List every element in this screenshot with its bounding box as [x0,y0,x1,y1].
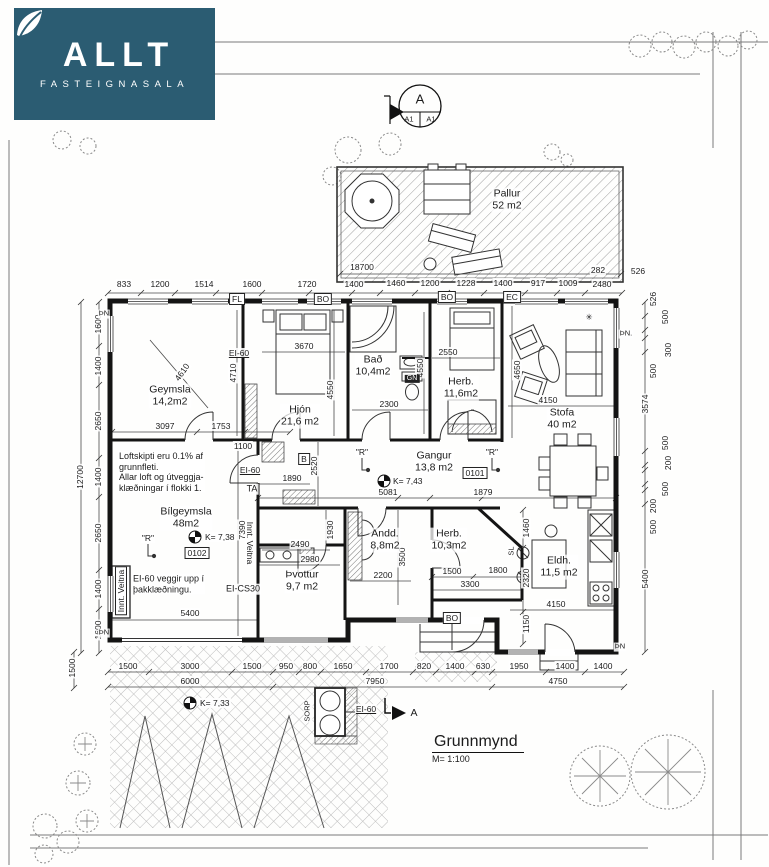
doors [185,412,575,652]
agency-logo: ALLT FASTEIGNASALA [14,8,215,120]
waste-enclosure [315,688,357,744]
level-marker-icon [189,531,202,544]
section-arrow-bottom [385,698,406,720]
dimension-lines [71,271,648,691]
brand-name: ALLT [63,38,175,72]
furniture [112,306,614,670]
drawing-title: Grunnmynd [432,733,524,753]
floor-plan-page: ALLT FASTEIGNASALA A A1 A1 Grunnmynd M= … [0,0,769,867]
hot-tub [345,174,399,228]
title-block: Grunnmynd M= 1:100 [432,733,524,764]
drawing-scale: M= 1:100 [432,754,524,764]
section-marker-sheet-left: A1 [404,115,413,124]
brand-subtitle: FASTEIGNASALA [40,79,189,90]
section-marker-letter: A [416,92,425,107]
section-marker-sheet-right: A1 [426,115,435,124]
level-marker-icon [184,697,197,710]
level-marker-icon [378,475,391,488]
plan-drawing [0,0,769,867]
deck [337,164,623,282]
